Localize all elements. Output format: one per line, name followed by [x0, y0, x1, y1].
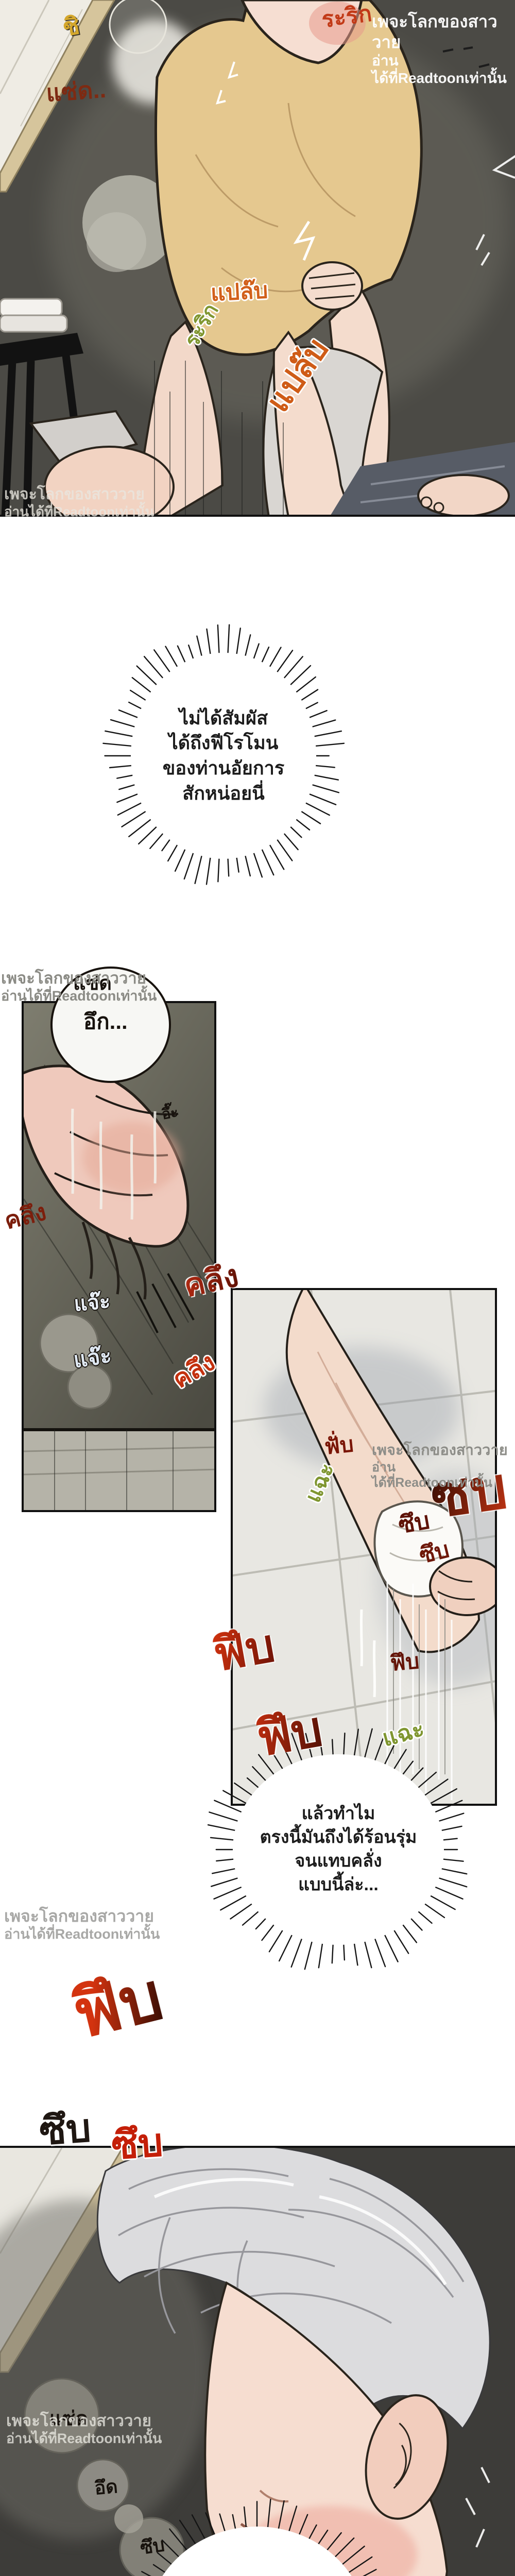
thought-bubble-1-text: ไม่ได้สัมผัส ได้ถึงฟีโรโมน ของท่านอัยการ… — [98, 620, 349, 891]
sfx-uet-1: อึด — [94, 2477, 118, 2498]
sfx-sueb-red: ซึบ — [110, 2123, 164, 2166]
webtoon-page: เพจะโลกของสาววาย อ่านได้ที่Readtoonเท่าน… — [0, 0, 515, 2576]
bubble-line: ไม่ได้สัมผัส — [179, 706, 268, 731]
watermark-line2: อ่านได้ที่Readtoonเท่านั้น — [4, 1926, 160, 1942]
bubble-line: จนแทบคลั่ง — [295, 1850, 382, 1873]
sfx-fueb-small: ฟึบ — [389, 1650, 420, 1674]
bubble-line: ตรงนี้มันถึงได้ร้อนรุ่ม — [260, 1826, 417, 1850]
towels — [0, 299, 62, 316]
sfx-sueb-black: ซึบ — [38, 2109, 92, 2151]
sfx-jae-1: แจ๊ะ — [73, 1291, 111, 1315]
grunt-bubble-text: อึก... — [83, 1011, 128, 1032]
bubble-line: แบบนี้ล่ะ... — [298, 1873, 379, 1897]
sfx-sueb-3: ซึบ — [139, 2535, 166, 2557]
sfx-saed-panel4: แซ่ด — [49, 2409, 88, 2429]
sfx-fueb-giant: ฟึ่บ — [67, 1963, 169, 2048]
sfx-saed-hidden: แซ่ด — [73, 974, 112, 993]
bubble-line: แล้วทำไม — [302, 1802, 375, 1826]
watermark-gap-1: เพจะโลกของสาววาย อ่านได้ที่Readtoonเท่าน… — [4, 1906, 160, 1943]
bubble-line: ของท่านอัยการ — [163, 756, 284, 781]
sfx-fueb-big-2: ฟึบ — [253, 1704, 326, 1763]
bubble-line: ได้ถึงฟีโรโมน — [169, 731, 279, 756]
thought-bubble-2: แล้วทำไม ตรงนี้มันถึงได้ร้อนรุ่ม จนแทบคล… — [199, 1720, 478, 1979]
thought-bubble-2-text: แล้วทำไม ตรงนี้มันถึงได้ร้อนรุ่ม จนแทบคล… — [199, 1720, 478, 1979]
foot — [418, 475, 509, 516]
sfx-fueb-big-1: ฟึ่บ — [210, 1622, 278, 1677]
hand — [430, 1557, 497, 1615]
thought-bubble-1: ไม่ได้สัมผัส ได้ถึงฟีโรโมน ของท่านอัยการ… — [98, 620, 349, 891]
sfx-ue: อึ๊ะ — [161, 1105, 179, 1122]
sfx-sob-big: ซบ — [427, 1459, 510, 1527]
sfx-jae-2: แจ๊ะ — [72, 1345, 113, 1371]
watermark-line1: เพจะโลกของสาววาย — [4, 1906, 160, 1926]
sfx-fub-1: ฟั่บ — [323, 1433, 354, 1458]
sfx-plaeb-1: แปล๊บ — [210, 279, 268, 305]
bubble-line: สักหน่อยนี่ — [182, 781, 264, 806]
sfx-saed-bubble: แซ่ด.. — [45, 77, 107, 105]
sfx-sueb-1: ซึบ — [397, 1509, 431, 1537]
